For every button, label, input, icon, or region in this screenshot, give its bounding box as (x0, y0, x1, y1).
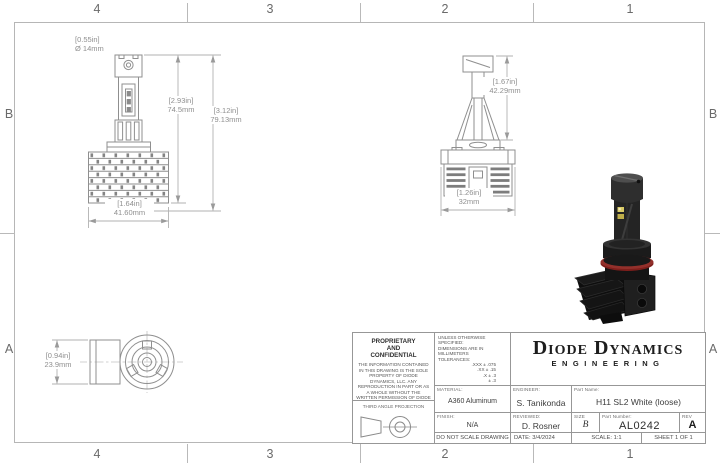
dim-front-diameter: [0.55in]Ø 14mm (74, 35, 105, 53)
size-cell: SIZE B (571, 412, 600, 433)
date-label: DATE: (514, 435, 531, 441)
part-name-cell: Part Name: H11 SL2 White (loose) (571, 385, 706, 413)
date-value: 3/4/2024 (532, 435, 555, 441)
reviewed-value: D. Rosner (511, 421, 571, 431)
logo-cell: Diode Dynamics ENGINEERING (510, 332, 706, 386)
reviewed-cell: REVIEWED: D. Rosner (510, 412, 572, 433)
part-name-value: H11 SL2 White (loose) (572, 397, 705, 407)
projection-label: THIRD ANGLE PROJECTION (353, 404, 434, 409)
part-name-label: Part Name: (574, 387, 599, 392)
dim-front-height-2: [3.12in]79.13mm (201, 106, 251, 124)
engineering-drawing-sheet: { "sheet": { "zones_top": ["4","3","2","… (0, 0, 720, 466)
dim-side-width: [1.26in]32mm (445, 188, 493, 206)
spec-line1: UNLESS OTHERWISE SPECIFIED: (438, 335, 510, 346)
engineer-label: ENGINEER: (513, 387, 540, 392)
dim-base-diameter: [0.94in]23.9mm (36, 351, 80, 369)
material-cell: MATERIAL: A360 Aluminum (434, 385, 511, 413)
proprietary-cell: PROPRIETARY AND CONFIDENTIAL THE INFORMA… (352, 332, 435, 401)
size-value: B (572, 420, 599, 430)
title-block: PROPRIETARY AND CONFIDENTIAL THE INFORMA… (352, 332, 706, 444)
dim-side-height: [1.67in]42.29mm (481, 77, 529, 95)
scale-text: SCALE: 1:1 (591, 435, 621, 441)
do-not-scale-cell: DO NOT SCALE DRAWING (434, 432, 511, 444)
diode-dynamics-logo: Diode Dynamics (511, 337, 705, 359)
logo-engineering-text: ENGINEERING (511, 359, 705, 368)
engineer-cell: ENGINEER: S. Tanikonda (510, 385, 572, 413)
sheet-text: SHEET 1 OF 1 (654, 435, 693, 441)
dim-front-width: [1.64in]41.60mm (105, 199, 154, 217)
spec-line2: DIMENSIONS ARE IN MILLIMETERS (438, 346, 510, 357)
finish-cell: FINISH: N/A (434, 412, 511, 433)
part-number-label: Part Number: (602, 414, 632, 419)
rev-value: A (680, 419, 705, 431)
front-view (89, 55, 169, 211)
rev-cell: REV A (679, 412, 706, 433)
engineer-value: S. Tanikonda (511, 398, 571, 408)
tolerance-spec-cell: UNLESS OTHERWISE SPECIFIED: DIMENSIONS A… (434, 332, 511, 386)
proprietary-body: THE INFORMATION CONTAINED IN THIS DRAWIN… (356, 362, 431, 401)
finish-label: FINISH: (437, 414, 455, 419)
size-label: SIZE (574, 414, 585, 419)
sheet-cell: SHEET 1 OF 1 (641, 432, 706, 444)
part-number-value: AL0242 (600, 420, 679, 432)
projection-cell: THIRD ANGLE PROJECTION (352, 400, 435, 444)
finish-value: N/A (435, 422, 510, 429)
do-not-scale-text: DO NOT SCALE DRAWING (436, 435, 508, 441)
third-angle-projection-symbol (353, 410, 435, 444)
reviewed-label: REVIEWED: (513, 414, 541, 419)
scale-cell: SCALE: 1:1 (571, 432, 642, 444)
date-cell: DATE: 3/4/2024 (510, 432, 572, 444)
base-view (78, 331, 183, 393)
isometric-render (565, 168, 670, 326)
material-label: MATERIAL: (437, 387, 463, 392)
proprietary-heading: PROPRIETARY AND CONFIDENTIAL (353, 338, 434, 359)
material-value: A360 Aluminum (435, 398, 510, 405)
part-number-cell: Part Number: AL0242 (599, 412, 680, 433)
dim-front-height-1: [2.93in]74.5mm (159, 96, 203, 114)
